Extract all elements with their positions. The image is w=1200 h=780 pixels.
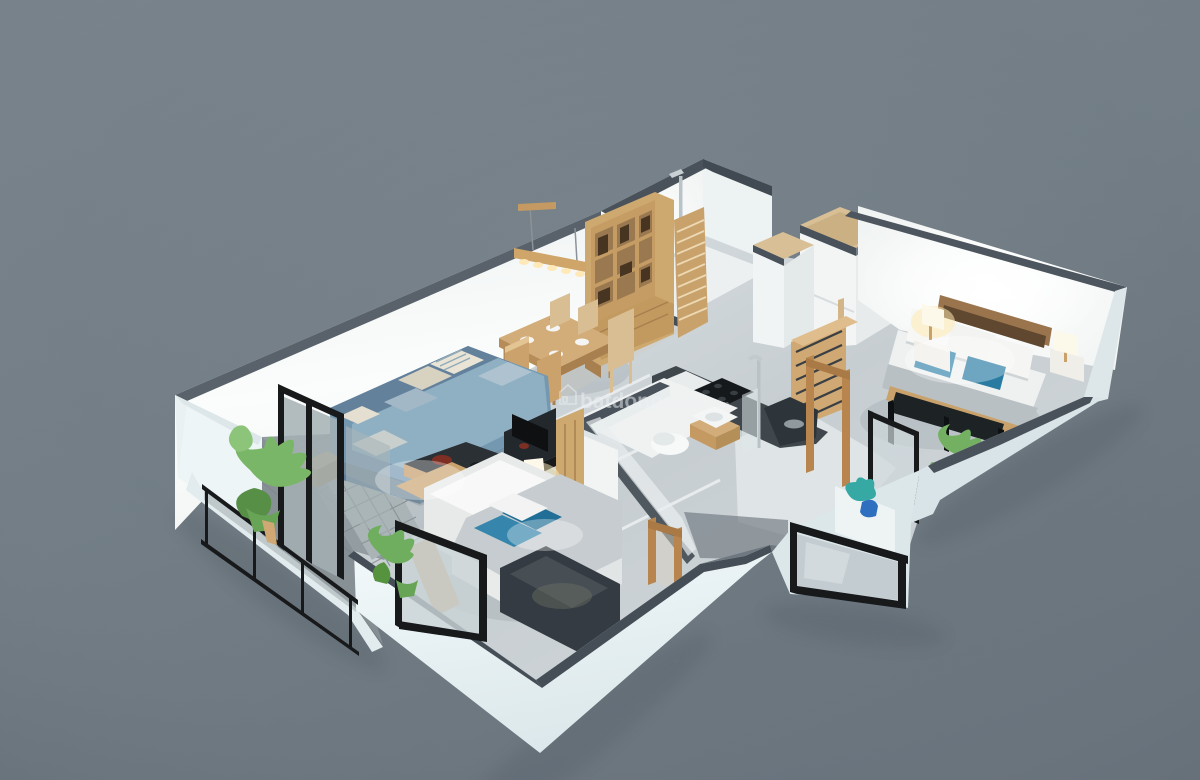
svg-text:.com.vn: .com.vn [688,399,730,411]
svg-text:batdongsan: batdongsan [580,390,699,413]
